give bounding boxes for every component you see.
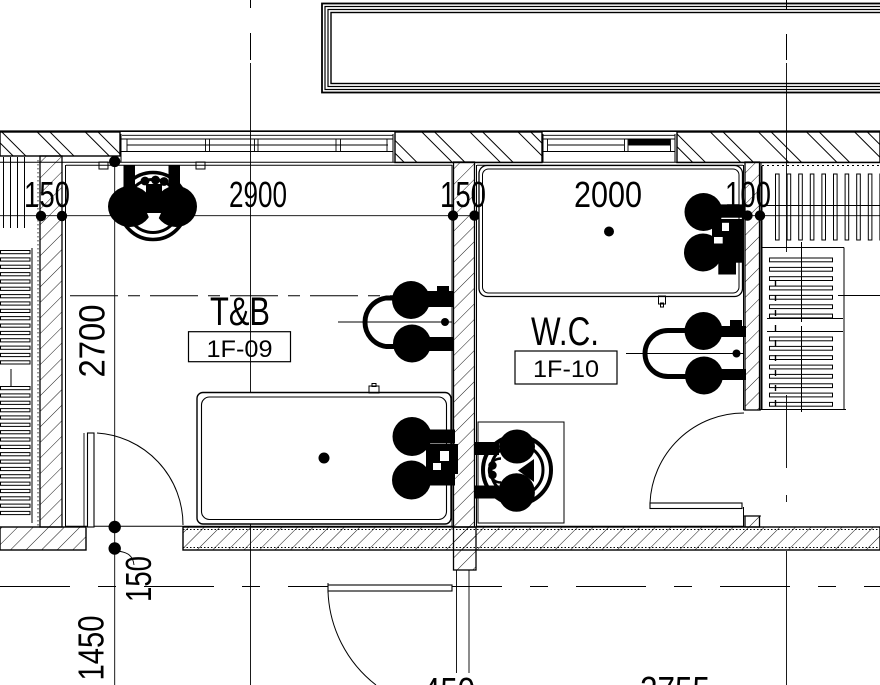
svg-text:2000: 2000 bbox=[574, 174, 642, 215]
svg-text:1F-10: 1F-10 bbox=[533, 356, 599, 383]
svg-text:150: 150 bbox=[118, 556, 159, 602]
svg-text:1F-09: 1F-09 bbox=[207, 336, 273, 363]
svg-text:150: 150 bbox=[24, 174, 70, 215]
svg-text:1450: 1450 bbox=[71, 616, 112, 681]
svg-text:2755: 2755 bbox=[640, 669, 710, 685]
svg-text:450: 450 bbox=[423, 670, 475, 685]
svg-text:T&B: T&B bbox=[210, 290, 270, 334]
svg-text:2700: 2700 bbox=[72, 305, 113, 378]
svg-text:150: 150 bbox=[440, 174, 486, 215]
svg-text:W.C.: W.C. bbox=[531, 310, 599, 354]
svg-text:100: 100 bbox=[725, 174, 771, 215]
svg-text:2900: 2900 bbox=[229, 174, 287, 215]
